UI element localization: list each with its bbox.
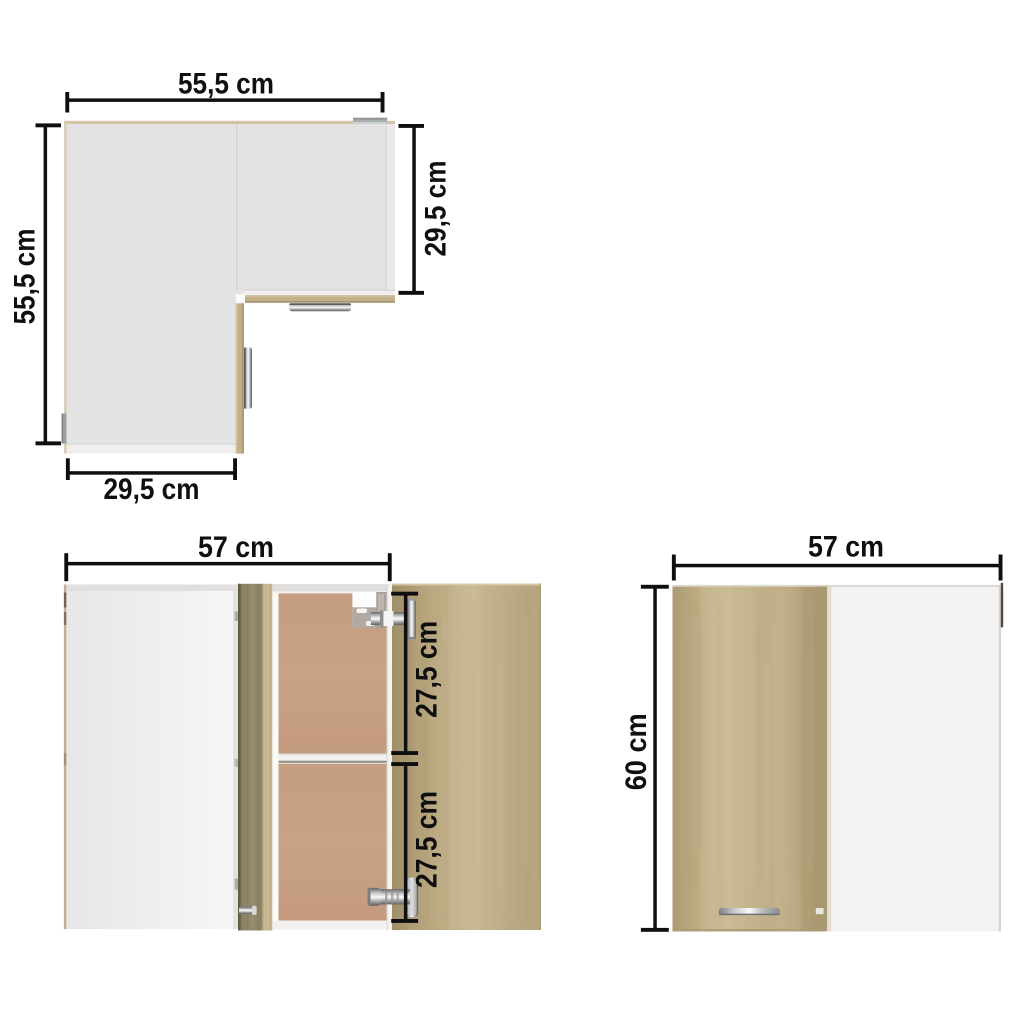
svg-text:29,5 cm: 29,5 cm <box>420 161 453 257</box>
svg-text:57 cm: 57 cm <box>198 531 274 564</box>
svg-text:55,5 cm: 55,5 cm <box>178 68 274 101</box>
svg-text:60 cm: 60 cm <box>620 713 653 790</box>
svg-text:29,5 cm: 29,5 cm <box>104 473 200 506</box>
svg-text:55,5 cm: 55,5 cm <box>9 229 42 325</box>
svg-text:57 cm: 57 cm <box>808 530 884 563</box>
svg-text:27,5 cm: 27,5 cm <box>411 621 444 718</box>
svg-text:27,5 cm: 27,5 cm <box>411 791 444 888</box>
